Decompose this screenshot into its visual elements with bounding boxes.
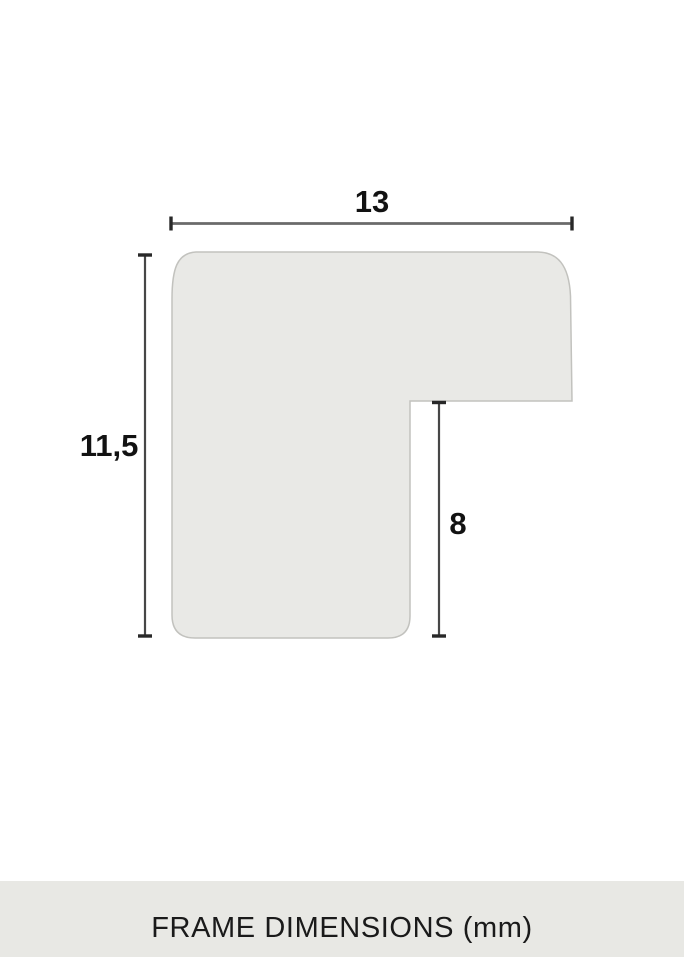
- height-dimension: 11,5: [80, 255, 152, 636]
- height-dimension-value: 11,5: [80, 428, 139, 463]
- width-dimension-value: 13: [355, 184, 389, 219]
- caption-bar: FRAME DIMENSIONS (mm): [0, 881, 684, 957]
- caption-text: FRAME DIMENSIONS (mm): [151, 912, 533, 944]
- frame-profile-shape: [172, 252, 572, 638]
- frame-profile-diagram: 13 11,5 8: [0, 0, 684, 881]
- rabbet-dimension-value: 8: [449, 506, 466, 541]
- width-dimension: 13: [171, 184, 572, 231]
- frame-dimensions-page: 13 11,5 8 FRAME DIMENSIONS (mm): [0, 0, 684, 957]
- rabbet-dimension: 8: [432, 403, 467, 637]
